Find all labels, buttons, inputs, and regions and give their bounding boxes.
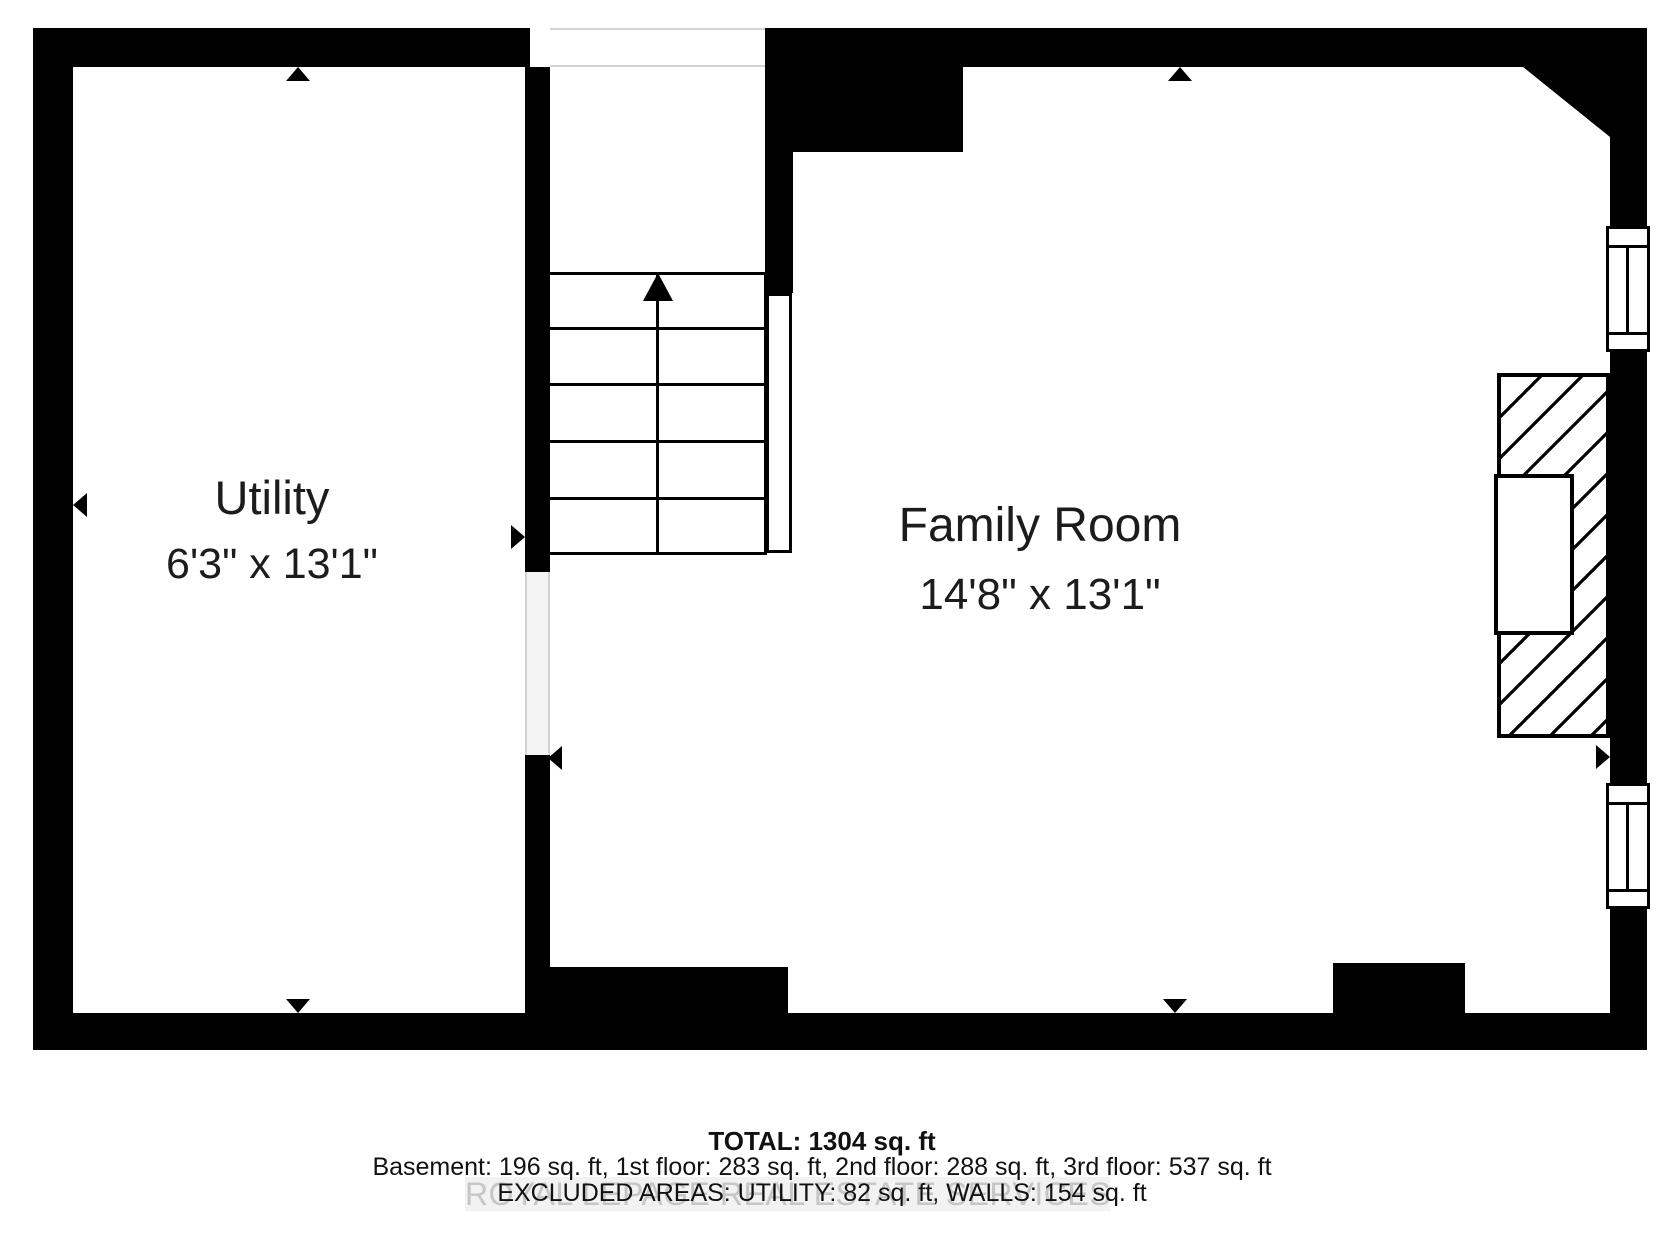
dimension-marker-down-icon: [286, 999, 310, 1013]
wall-right-mid: [1610, 352, 1647, 785]
stairs-up-arrow-icon: [643, 273, 673, 301]
room-label-utility: Utility: [22, 470, 522, 525]
room-dimensions-utility: 6'3" x 13'1": [22, 540, 522, 589]
wall-bottom-bump-left: [550, 967, 788, 1013]
dimension-marker-right-icon: [1596, 745, 1610, 769]
summary-excluded: EXCLUDED AREAS: UTILITY: 82 sq. ft, WALL…: [0, 1179, 1644, 1208]
wall-stair-upper: [525, 67, 550, 572]
wall-bottom: [33, 1013, 1647, 1050]
fireplace-firebox: [1494, 474, 1574, 635]
room-dimensions-family-room: 14'8" x 13'1": [790, 570, 1290, 620]
wall-bottom-bump-right: [1333, 963, 1465, 1013]
wall-stairwell-head: [765, 28, 963, 152]
stair-center-line: [656, 272, 659, 555]
wall-left: [33, 28, 73, 1050]
wall-top-utility: [33, 28, 530, 67]
floor-plan: Utility 6'3" x 13'1" Family Room 14'8" x…: [0, 0, 1680, 1260]
stair-railing: [766, 293, 792, 553]
dimension-marker-down-icon: [1163, 999, 1187, 1013]
wall-stair-lower: [525, 755, 550, 1013]
summary-floors: Basement: 196 sq. ft, 1st floor: 283 sq.…: [0, 1153, 1644, 1182]
window-2-glass-line: [1626, 802, 1629, 892]
dimension-marker-up-icon: [1168, 67, 1192, 81]
opening-marker-left-icon: [548, 746, 562, 770]
window-1-glass-line: [1626, 245, 1629, 335]
wall-top-family: [963, 28, 1647, 67]
room-label-family-room: Family Room: [790, 498, 1290, 553]
dimension-marker-up-icon: [286, 67, 310, 81]
stairwell-top-opening: [550, 28, 765, 67]
wall-stairwell-right: [765, 152, 793, 293]
utility-door-opening: [525, 572, 550, 755]
wall-right-upper: [1610, 67, 1647, 228]
wall-corner-chamfer: [1523, 67, 1610, 137]
